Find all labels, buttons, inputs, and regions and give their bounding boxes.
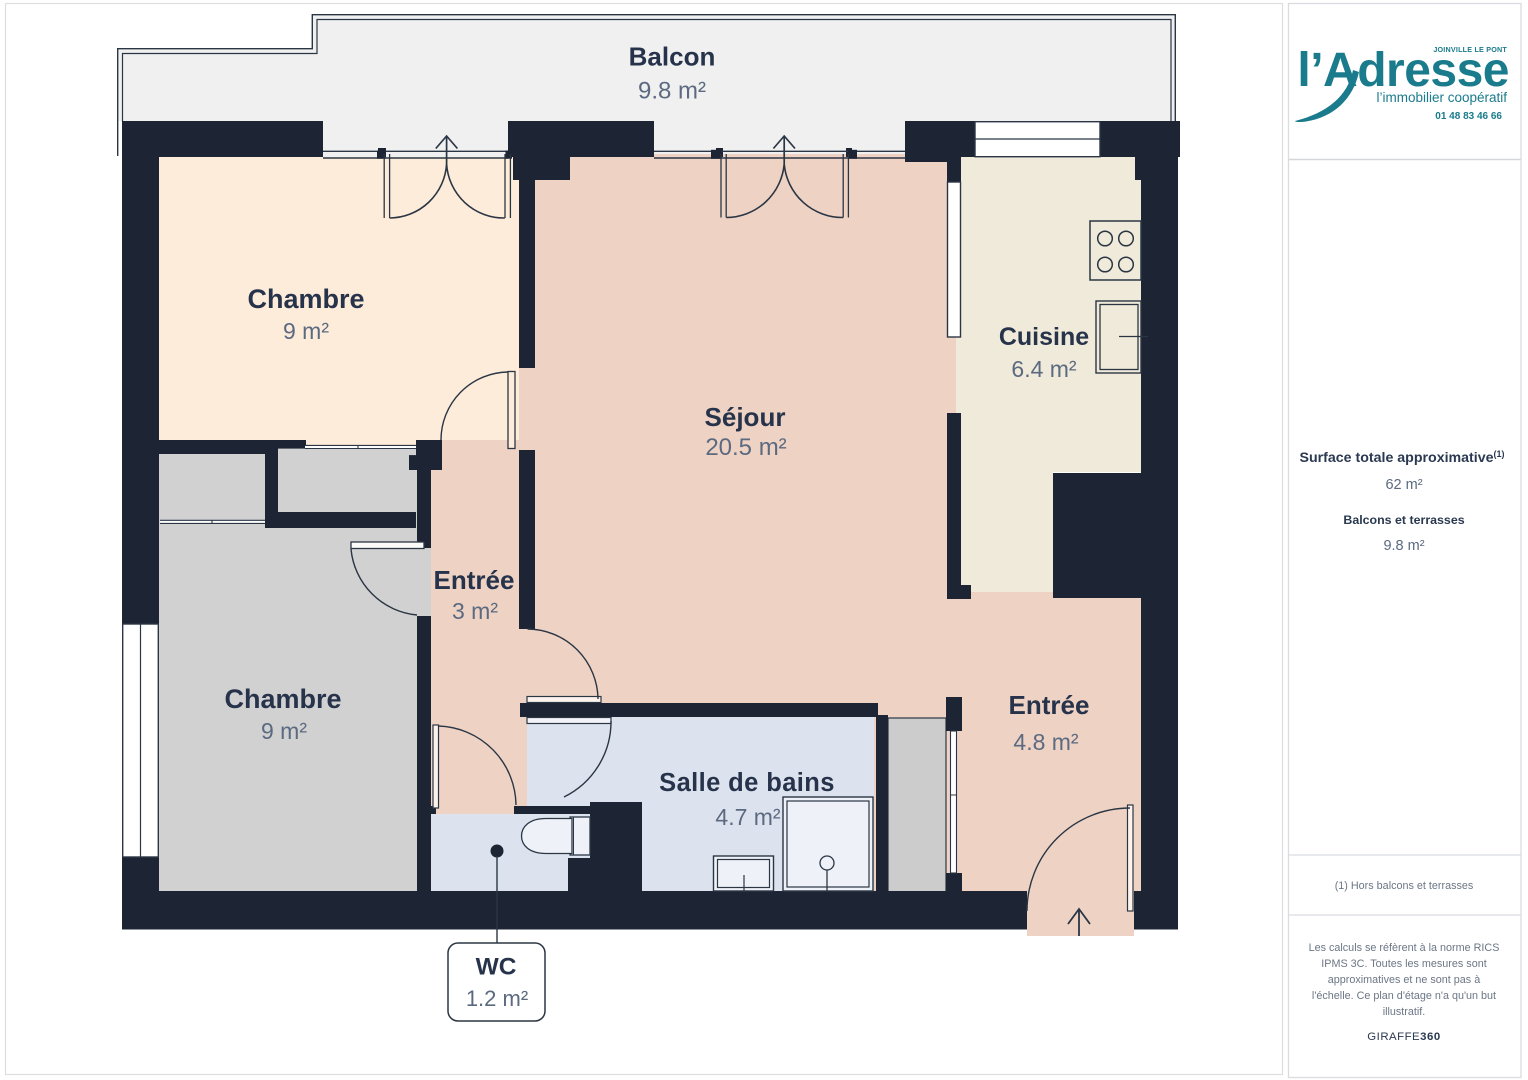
svg-text:Chambre: Chambre — [224, 684, 341, 714]
svg-text:Entrée: Entrée — [1009, 690, 1090, 720]
svg-text:(1) Hors balcons et terrasses: (1) Hors balcons et terrasses — [1335, 880, 1474, 892]
svg-text:9.8 m²: 9.8 m² — [1383, 538, 1424, 554]
svg-text:Les calculs se réfèrent à la n: Les calculs se réfèrent à la norme RICS — [1309, 942, 1500, 954]
svg-text:approximatives et ne sont pas: approximatives et ne sont pas à — [1328, 974, 1480, 986]
svg-text:3 m²: 3 m² — [452, 598, 498, 624]
svg-text:Entrée: Entrée — [434, 565, 515, 595]
svg-text:4.8 m²: 4.8 m² — [1013, 729, 1079, 755]
svg-text:Séjour: Séjour — [705, 402, 786, 432]
svg-text:WC: WC — [476, 954, 517, 981]
svg-text:9.8 m²: 9.8 m² — [638, 78, 706, 105]
svg-text:IPMS 3C. Toutes les mesures so: IPMS 3C. Toutes les mesures sont — [1321, 958, 1486, 970]
svg-text:Chambre: Chambre — [247, 284, 364, 314]
svg-text:illustratif.: illustratif. — [1383, 1006, 1426, 1018]
svg-text:9 m²: 9 m² — [283, 318, 329, 344]
svg-text:9 m²: 9 m² — [261, 718, 307, 744]
svg-text:Salle de bains: Salle de bains — [659, 769, 835, 797]
svg-text:62 m²: 62 m² — [1385, 477, 1422, 493]
svg-text:Balcon: Balcon — [629, 42, 716, 72]
svg-text:l'échelle. Ce plan d'étage n'a: l'échelle. Ce plan d'étage n'a qu'un but — [1312, 990, 1496, 1002]
svg-text:4.7 m²: 4.7 m² — [715, 804, 781, 830]
svg-text:l’immobilier coopératif: l’immobilier coopératif — [1376, 90, 1507, 105]
svg-text:6.4 m²: 6.4 m² — [1011, 356, 1077, 382]
svg-text:Surface totale approximative(1: Surface totale approximative(1) — [1300, 449, 1505, 466]
svg-text:GIRAFFE360: GIRAFFE360 — [1367, 1031, 1440, 1043]
svg-text:Balcons et terrasses: Balcons et terrasses — [1343, 513, 1464, 527]
svg-text:01 48 83 46 66: 01 48 83 46 66 — [1435, 111, 1502, 122]
svg-text:Cuisine: Cuisine — [999, 323, 1089, 351]
svg-text:20.5 m²: 20.5 m² — [705, 434, 786, 461]
svg-text:1.2 m²: 1.2 m² — [466, 986, 528, 1011]
